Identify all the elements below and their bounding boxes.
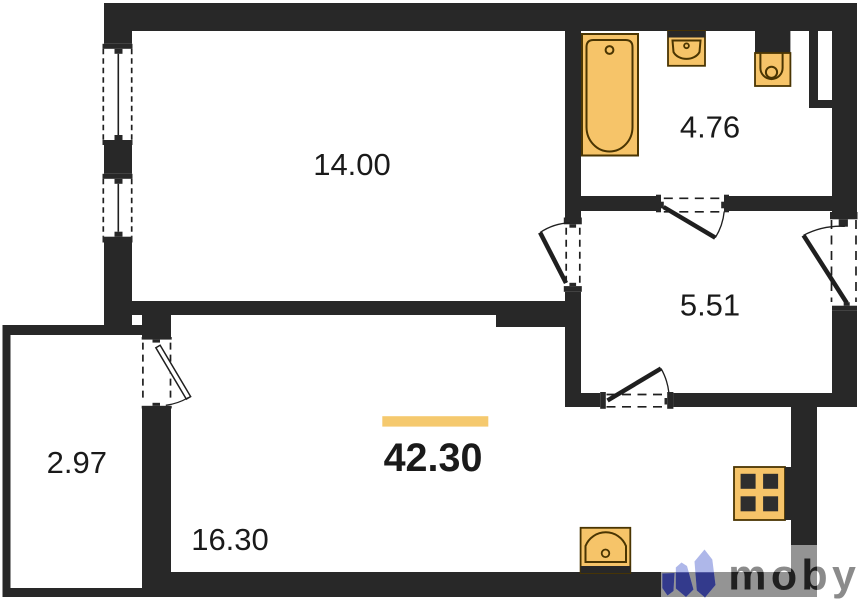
svg-text:2.97: 2.97 xyxy=(47,445,107,480)
svg-text:14.00: 14.00 xyxy=(313,147,391,182)
svg-text:42.30: 42.30 xyxy=(384,436,483,480)
svg-text:5.51: 5.51 xyxy=(680,287,740,322)
svg-text:16.30: 16.30 xyxy=(191,522,269,557)
svg-text:4.76: 4.76 xyxy=(680,110,740,145)
svg-text:moby: moby xyxy=(728,552,860,600)
